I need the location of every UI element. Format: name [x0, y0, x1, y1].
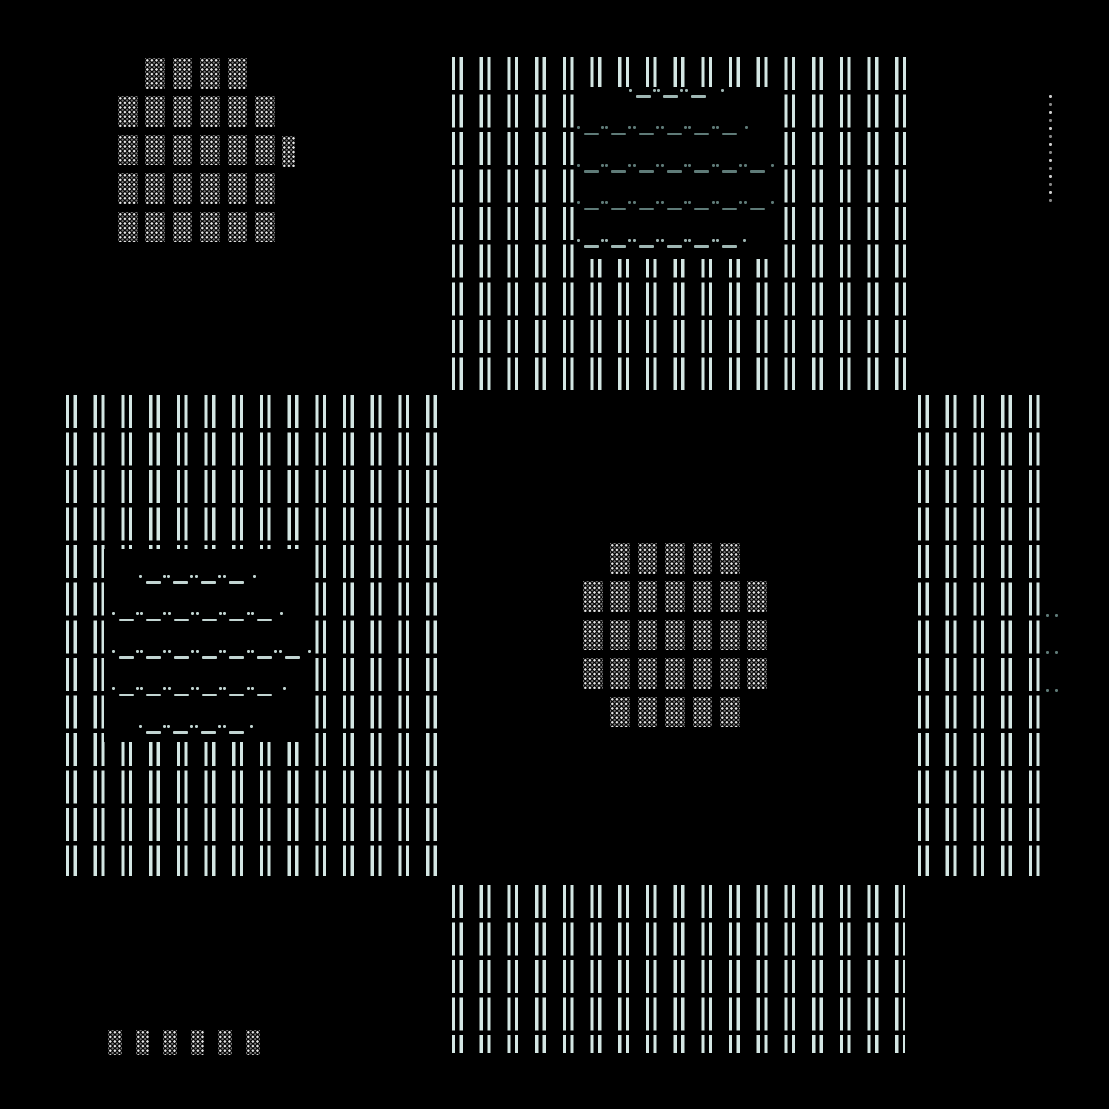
dotted-line-dot: [1049, 111, 1052, 114]
contour-dash: [639, 208, 654, 211]
contour-dot: [139, 575, 142, 578]
shade-block: [228, 58, 248, 89]
contour-dot: [633, 201, 636, 204]
contour-dot: [251, 650, 254, 653]
contour-dot: [247, 612, 250, 615]
contour-dot: [1055, 651, 1058, 654]
shade-block: [145, 58, 165, 89]
contour-dot: [163, 725, 166, 728]
contour-dot: [688, 164, 691, 167]
shade-block: [173, 212, 193, 243]
contour-dot: [577, 126, 580, 129]
shade-block: [665, 620, 685, 651]
contour-dot: [716, 201, 719, 204]
shade-block: [118, 173, 138, 204]
contour-dot: [716, 164, 719, 167]
shade-block: [173, 135, 193, 166]
contour-dot: [251, 687, 254, 690]
contour-dash: [146, 731, 161, 734]
contour-dot: [680, 89, 683, 92]
contour-dot: [744, 201, 747, 204]
contour-dot: [661, 239, 664, 242]
dotted-line-dot: [1049, 135, 1052, 138]
contour-dot: [661, 201, 664, 204]
contour-dot: [283, 687, 286, 690]
shade-block: [136, 1030, 150, 1055]
contour-dot: [712, 164, 715, 167]
shade-block: [693, 620, 713, 651]
contour-dot: [712, 201, 715, 204]
contour-dot: [251, 612, 254, 615]
contour-dash: [119, 694, 134, 697]
contour-dot: [140, 650, 143, 653]
dotted-line-dot: [1049, 191, 1052, 194]
contour-dot: [601, 239, 604, 242]
shade-block: [720, 620, 740, 651]
contour-dot: [274, 650, 277, 653]
contour-dash: [146, 694, 161, 697]
shade-block: [665, 697, 685, 728]
contour-dot: [661, 164, 664, 167]
shade-block: [693, 543, 713, 574]
shade-block: [255, 96, 275, 127]
contour-dash: [174, 656, 189, 659]
contour-dash: [257, 656, 272, 659]
shade-block: [200, 96, 220, 127]
contour-dot: [771, 201, 774, 204]
contour-dash: [146, 619, 161, 622]
contour-dash: [229, 619, 244, 622]
contour-dot: [633, 164, 636, 167]
dotted-line-dot: [1049, 127, 1052, 130]
contour-dash: [174, 694, 189, 697]
contour-dot: [601, 201, 604, 204]
contour-dot: [253, 575, 256, 578]
contour-dash: [694, 208, 709, 211]
shade-block: [610, 581, 630, 612]
shade-block: [610, 543, 630, 574]
shade-block: [200, 173, 220, 204]
contour-dot: [712, 239, 715, 242]
contour-dash: [146, 656, 161, 659]
shade-block: [610, 620, 630, 651]
shade-block: [200, 212, 220, 243]
contour-dash: [229, 656, 244, 659]
contour-dash: [611, 133, 626, 136]
contour-dot: [633, 239, 636, 242]
contour-dot: [712, 126, 715, 129]
contour-dot: [1055, 689, 1058, 692]
contour-dot: [112, 650, 115, 653]
shade-block: [118, 135, 138, 166]
contour-dot: [112, 687, 115, 690]
shade-block: [665, 658, 685, 689]
contour-dot: [1046, 614, 1049, 617]
contour-dash: [611, 170, 626, 173]
contour-dash: [750, 208, 765, 211]
shade-block: [200, 135, 220, 166]
dotted-line-dot: [1049, 159, 1052, 162]
contour-dot: [223, 725, 226, 728]
contour-dot: [601, 126, 604, 129]
contour-dot: [136, 650, 139, 653]
contour-dot: [743, 239, 746, 242]
contour-dot: [688, 239, 691, 242]
contour-dash: [691, 95, 706, 98]
shade-block: [720, 658, 740, 689]
contour-dot: [577, 201, 580, 204]
shade-block: [145, 96, 165, 127]
contour-dot: [136, 687, 139, 690]
shade-block: [200, 58, 220, 89]
contour-dot: [684, 164, 687, 167]
textmode-art-canvas: [0, 0, 1109, 1109]
shade-block: [747, 581, 767, 612]
contour-dash: [667, 208, 682, 211]
contour-dot: [308, 650, 311, 653]
contour-dash: [584, 170, 599, 173]
shade-block: [228, 173, 248, 204]
dotted-line-dot: [1049, 199, 1052, 202]
shade-block: [218, 1030, 232, 1055]
shade-block: [108, 1030, 122, 1055]
contour-dot: [716, 239, 719, 242]
contour-dot: [744, 164, 747, 167]
contour-dot: [739, 201, 742, 204]
shade-block: [610, 697, 630, 728]
contour-dot: [250, 725, 253, 728]
shade-block: [228, 135, 248, 166]
contour-dash: [202, 694, 217, 697]
contour-dash: [174, 619, 189, 622]
contour-dash: [257, 694, 272, 697]
contour-dot: [280, 612, 283, 615]
left-middle-void: [104, 549, 315, 742]
contour-dot: [629, 89, 632, 92]
contour-dot: [218, 725, 221, 728]
shade-block: [583, 658, 603, 689]
contour-dot: [168, 650, 171, 653]
contour-dot: [685, 89, 688, 92]
shade-block: [228, 212, 248, 243]
contour-dash: [639, 133, 654, 136]
shade-block: [118, 96, 138, 127]
contour-dash: [636, 95, 651, 98]
shade-block: [173, 96, 193, 127]
contour-dot: [191, 650, 194, 653]
shade-block: [693, 697, 713, 728]
contour-dot: [223, 575, 226, 578]
contour-dash: [611, 245, 626, 248]
shade-block: [255, 212, 275, 243]
dotted-line-dot: [1049, 119, 1052, 122]
shade-block: [173, 58, 193, 89]
contour-dot: [1046, 689, 1049, 692]
contour-dash: [584, 208, 599, 211]
contour-dot: [1055, 614, 1058, 617]
dotted-line-dot: [1049, 167, 1052, 170]
contour-dot: [745, 126, 748, 129]
contour-dot: [601, 164, 604, 167]
shade-block: [638, 620, 658, 651]
contour-dot: [195, 725, 198, 728]
contour-dash: [584, 245, 599, 248]
contour-dot: [577, 239, 580, 242]
contour-dot: [219, 650, 222, 653]
contour-dot: [191, 687, 194, 690]
dotted-line-dot: [1049, 95, 1052, 98]
contour-dash: [694, 133, 709, 136]
contour-dash: [202, 656, 217, 659]
contour-dot: [196, 687, 199, 690]
contour-dot: [218, 575, 221, 578]
contour-dash: [722, 133, 737, 136]
dotted-line-dot: [1049, 183, 1052, 186]
shade-block: [583, 581, 603, 612]
contour-dot: [771, 164, 774, 167]
shade-block: [693, 581, 713, 612]
contour-dot: [656, 164, 659, 167]
contour-dash: [119, 619, 134, 622]
shade-block: [173, 173, 193, 204]
contour-dash: [667, 133, 682, 136]
contour-dash: [722, 170, 737, 173]
contour-dot: [195, 575, 198, 578]
shade-block: [246, 1030, 260, 1055]
shade-block: [720, 581, 740, 612]
bar-field-bottom-middle: [452, 885, 905, 1053]
contour-dot: [656, 201, 659, 204]
contour-dot: [167, 575, 170, 578]
contour-dot: [656, 126, 659, 129]
contour-dash: [202, 619, 217, 622]
contour-dash: [146, 581, 161, 584]
bar-field-right-middle: [918, 395, 1042, 876]
contour-dash: [667, 245, 682, 248]
contour-dash: [639, 170, 654, 173]
contour-dot: [656, 239, 659, 242]
contour-dash: [750, 170, 765, 173]
shade-block: [665, 543, 685, 574]
contour-dot: [139, 725, 142, 728]
shade-block: [638, 543, 658, 574]
contour-dash: [667, 170, 682, 173]
contour-dash: [584, 133, 599, 136]
contour-dot: [716, 126, 719, 129]
shade-block: [163, 1030, 177, 1055]
shade-block: [255, 173, 275, 204]
contour-dot: [168, 687, 171, 690]
contour-dot: [605, 239, 608, 242]
shade-block: [145, 135, 165, 166]
contour-dash: [229, 731, 244, 734]
contour-dot: [167, 725, 170, 728]
contour-dot: [219, 612, 222, 615]
shade-block: [665, 581, 685, 612]
shade-block: [282, 136, 296, 167]
shade-block: [638, 581, 658, 612]
contour-dot: [163, 650, 166, 653]
contour-dot: [163, 575, 166, 578]
contour-dot: [633, 126, 636, 129]
contour-dot: [605, 164, 608, 167]
contour-dash: [229, 694, 244, 697]
contour-dot: [136, 612, 139, 615]
contour-dash: [173, 731, 188, 734]
contour-dot: [247, 687, 250, 690]
shade-block: [720, 697, 740, 728]
contour-dot: [196, 650, 199, 653]
shade-block: [638, 658, 658, 689]
shade-block: [720, 543, 740, 574]
contour-dot: [653, 89, 656, 92]
contour-dash: [201, 731, 216, 734]
contour-dash: [119, 656, 134, 659]
dotted-line-dot: [1049, 151, 1052, 154]
dotted-line-dot: [1049, 103, 1052, 106]
contour-dot: [191, 612, 194, 615]
top-middle-void: [576, 87, 774, 259]
contour-dot: [684, 126, 687, 129]
contour-dot: [190, 725, 193, 728]
dotted-line-dot: [1049, 143, 1052, 146]
contour-dot: [1046, 651, 1049, 654]
shade-block: [228, 96, 248, 127]
contour-dash: [694, 170, 709, 173]
shade-block: [747, 658, 767, 689]
dotted-line-dot: [1049, 175, 1052, 178]
contour-dot: [219, 687, 222, 690]
shade-block: [638, 697, 658, 728]
contour-dot: [223, 650, 226, 653]
contour-dot: [684, 201, 687, 204]
contour-dash: [173, 581, 188, 584]
contour-dot: [190, 575, 193, 578]
shade-block: [118, 212, 138, 243]
contour-dash: [639, 245, 654, 248]
contour-dash: [663, 95, 678, 98]
contour-dash: [722, 245, 737, 248]
contour-dash: [694, 245, 709, 248]
contour-dot: [279, 650, 282, 653]
shade-block: [191, 1030, 205, 1055]
contour-dot: [168, 612, 171, 615]
contour-dash: [257, 619, 272, 622]
contour-dot: [577, 164, 580, 167]
shade-block: [747, 620, 767, 651]
contour-dot: [721, 89, 724, 92]
contour-dot: [628, 239, 631, 242]
contour-dash: [229, 581, 244, 584]
contour-dot: [247, 650, 250, 653]
contour-dot: [739, 164, 742, 167]
shade-block: [693, 658, 713, 689]
shade-block: [145, 212, 165, 243]
contour-dash: [201, 581, 216, 584]
shade-block: [583, 620, 603, 651]
contour-dot: [657, 89, 660, 92]
shade-block: [255, 135, 275, 166]
shade-block: [145, 173, 165, 204]
shade-block: [610, 658, 630, 689]
contour-dash: [611, 208, 626, 211]
contour-dot: [196, 612, 199, 615]
contour-dot: [661, 126, 664, 129]
contour-dot: [684, 239, 687, 242]
contour-dot: [628, 164, 631, 167]
contour-dash: [285, 656, 300, 659]
contour-dash: [722, 208, 737, 211]
contour-dot: [112, 612, 115, 615]
